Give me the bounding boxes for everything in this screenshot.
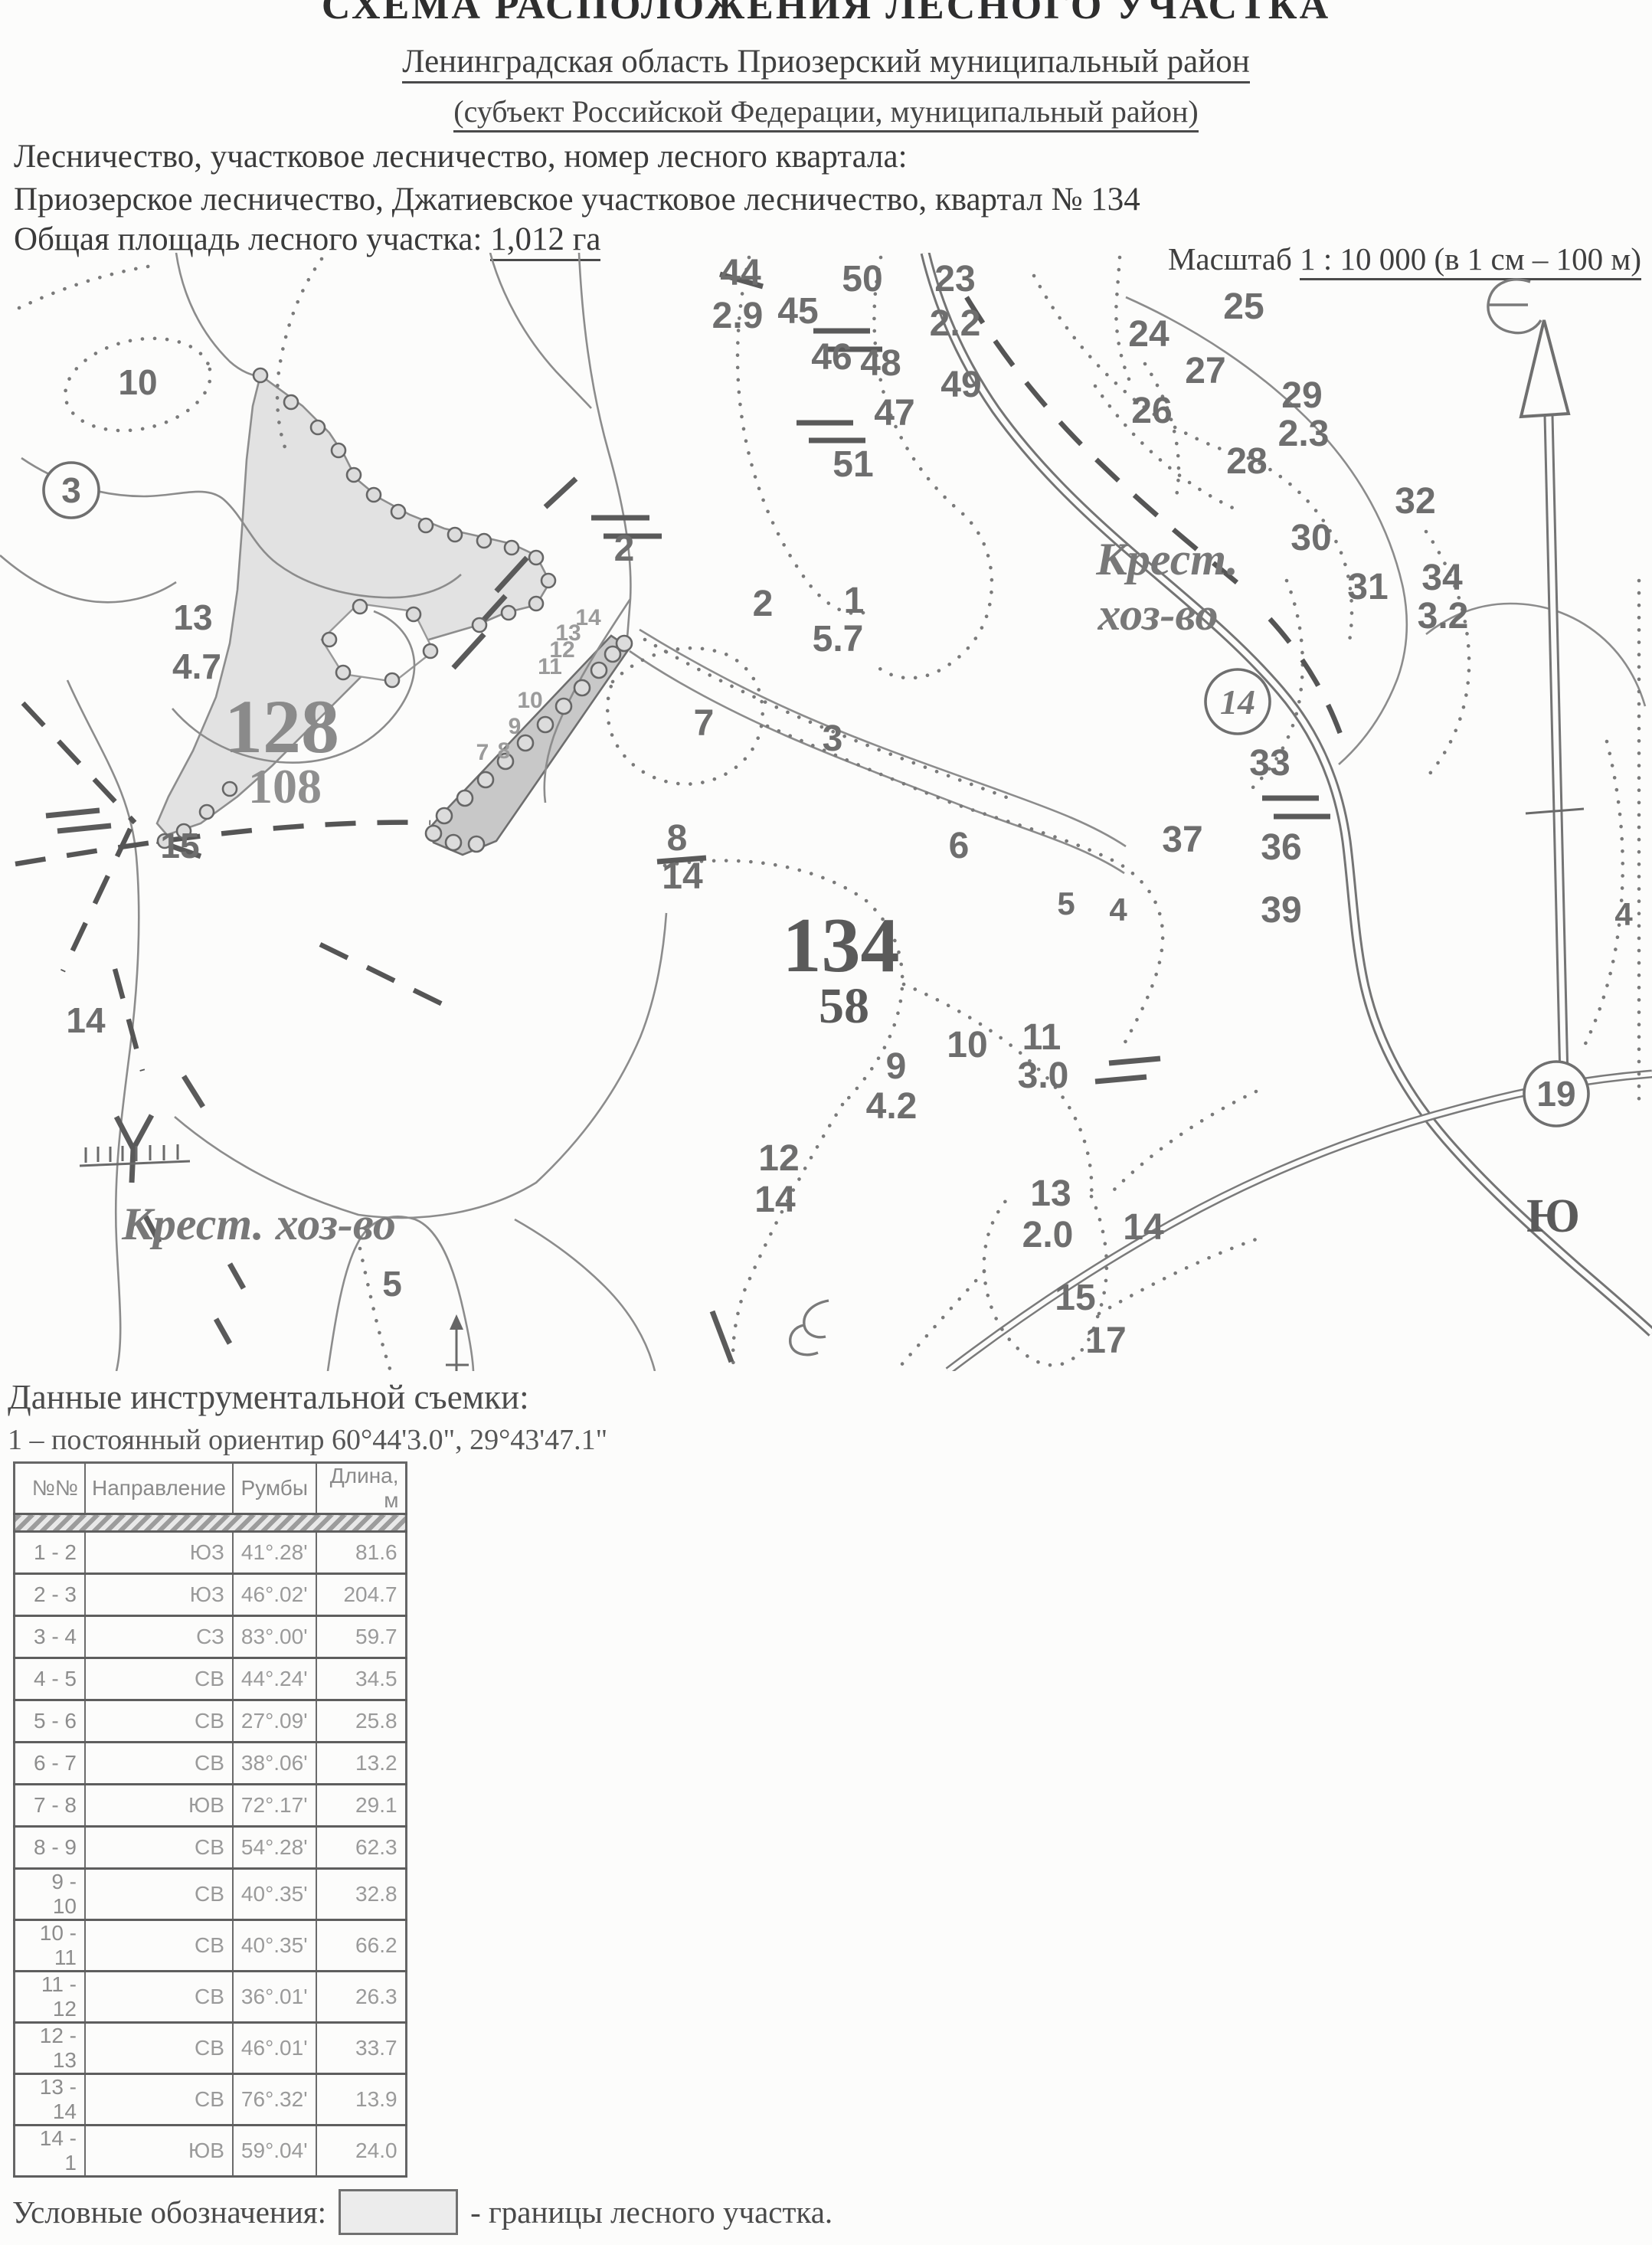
map-label: 28 (1226, 441, 1267, 482)
survey-row: 2 - 3ЮЗ46°.02'204.7 (15, 1574, 407, 1616)
map-label: 5.7 (813, 619, 864, 659)
survey-cell: 41°.28' (233, 1532, 316, 1574)
legend-meaning: - границы лесного участка. (470, 2194, 833, 2230)
survey-cell: 27°.09' (233, 1700, 316, 1743)
survey-cell: 7 - 8 (15, 1785, 86, 1827)
map-label: 27 (1185, 351, 1225, 391)
map-label: 49 (940, 365, 981, 405)
survey-row: 12 - 13СВ46°.01'33.7 (15, 2023, 407, 2074)
survey-row: 5 - 6СВ27°.09'25.8 (15, 1700, 407, 1743)
map-label: 39 (1261, 890, 1301, 931)
map-label: 8 (667, 818, 688, 859)
survey-cell: СВ (85, 1827, 233, 1869)
survey-cell: 24.0 (316, 2126, 407, 2177)
survey-cell: 44°.24' (233, 1658, 316, 1700)
map-label: 128 (224, 684, 339, 769)
map-label: 31 (1347, 567, 1388, 607)
survey-row: 6 - 7СВ38°.06'13.2 (15, 1743, 407, 1785)
legend-label: Условные обозначения: (12, 2194, 326, 2230)
north-arrow (1487, 280, 1584, 1078)
survey-cell: 13.9 (316, 2074, 407, 2126)
forestry-value: Приозерское лесничество, Джатиевское уча… (14, 181, 1140, 218)
map-label: 14 (575, 605, 601, 630)
survey-cell: 25.8 (316, 1700, 407, 1743)
survey-cell: СВ (85, 1700, 233, 1743)
survey-cell: 2 - 3 (15, 1574, 86, 1616)
map-label: 3.2 (1418, 596, 1469, 637)
survey-cell: 26.3 (316, 1972, 407, 2023)
map-label: 25 (1223, 286, 1264, 327)
map-label: 13 (1030, 1173, 1071, 1214)
survey-cell: 46°.02' (233, 1574, 316, 1616)
survey-cell: 8 - 9 (15, 1827, 86, 1869)
survey-col-header: Длина, м (316, 1463, 407, 1514)
survey-cell: 13 - 14 (15, 2074, 86, 2126)
tree-symbol (360, 1248, 469, 1371)
survey-cell: 5 - 6 (15, 1700, 86, 1743)
map-label: 5 (382, 1264, 402, 1304)
survey-cell: 54°.28' (233, 1827, 316, 1869)
map-label: 8 (498, 738, 511, 764)
map-label: 14 (1123, 1207, 1164, 1248)
survey-cell: 1 - 2 (15, 1532, 86, 1574)
survey-cell: 3 - 4 (15, 1616, 86, 1658)
survey-cell: 9 - 10 (15, 1869, 86, 1920)
survey-row: 3 - 4СЗ83°.00'59.7 (15, 1616, 407, 1658)
survey-cell: 12 - 13 (15, 2023, 86, 2074)
survey-row: 8 - 9СВ54°.28'62.3 (15, 1827, 407, 1869)
map-label: 10 (517, 688, 542, 713)
survey-cell: 4 - 5 (15, 1658, 86, 1700)
map-label: Ю (1526, 1190, 1580, 1242)
map-label: 2.2 (930, 303, 981, 344)
survey-cell: ЮВ (85, 1785, 233, 1827)
survey-cell: 13.2 (316, 1743, 407, 1785)
survey-table-header: №№НаправлениеРумбыДлина, м (15, 1463, 407, 1514)
survey-cell: 40°.35' (233, 1920, 316, 1972)
survey-cell: СВ (85, 1743, 233, 1785)
survey-cell: ЮВ (85, 2126, 233, 2177)
survey-row: 11 - 12СВ36°.01'26.3 (15, 1972, 407, 2023)
map-label: 29 (1281, 375, 1322, 416)
survey-row: 4 - 5СВ44°.24'34.5 (15, 1658, 407, 1700)
map-label: 134 (783, 902, 900, 989)
map-label: 4.7 (172, 646, 221, 686)
map-label: 48 (860, 343, 901, 384)
map-label: 14 (66, 1000, 106, 1040)
map-label: 19 (1536, 1074, 1575, 1114)
survey-cell: 46°.01' (233, 2023, 316, 2074)
map-label: 2 (614, 529, 635, 569)
map-label: 2 (753, 584, 774, 624)
plot-boundary-swatch (339, 2189, 458, 2235)
map-label: 46 (811, 337, 852, 378)
map-label: Крест. хоз-во (121, 1199, 396, 1249)
map-label: 6 (949, 826, 970, 866)
legend: Условные обозначения: - границы лесного … (12, 2189, 833, 2235)
survey-cell: СВ (85, 2023, 233, 2074)
survey-cell: 204.7 (316, 1574, 407, 1616)
map-label: 17 (1085, 1320, 1126, 1361)
hatched-separator-row (15, 1514, 407, 1532)
survey-cell: СЗ (85, 1616, 233, 1658)
map-label: 36 (1261, 827, 1301, 868)
map-label: 34 (1421, 558, 1463, 598)
survey-cell: 34.5 (316, 1658, 407, 1700)
survey-cell: 59°.04' (233, 2126, 316, 2177)
map-label: 10 (947, 1025, 987, 1065)
survey-cell: СВ (85, 2074, 233, 2126)
map-label: 9 (509, 714, 522, 739)
survey-heading: Данные инструментальной съемки: (8, 1377, 529, 1417)
map-label: 37 (1162, 820, 1202, 860)
map-label: 2.3 (1278, 414, 1330, 454)
map-label: 2.0 (1022, 1215, 1074, 1255)
map-label: 14 (1220, 682, 1255, 722)
survey-row: 9 - 10СВ40°.35'32.8 (15, 1869, 407, 1920)
map-label: 4 (1109, 892, 1127, 928)
map-label: 26 (1131, 391, 1172, 431)
survey-cell: 62.3 (316, 1827, 407, 1869)
map-label: хоз-во (1097, 589, 1218, 640)
map-label: 47 (874, 393, 914, 434)
map-label: 108 (248, 759, 322, 813)
map-label: 3 (823, 718, 843, 759)
survey-cell: 32.8 (316, 1869, 407, 1920)
survey-col-header: Направление (85, 1463, 233, 1514)
survey-cell: 76°.32' (233, 2074, 316, 2126)
map-label: 45 (777, 291, 818, 332)
survey-cell: ЮЗ (85, 1532, 233, 1574)
map-label: Крест. (1095, 534, 1238, 584)
map-label: 1 (844, 581, 865, 621)
survey-row: 14 - 1ЮВ59°.04'24.0 (15, 2126, 407, 2177)
map-label: 9 (886, 1046, 907, 1087)
map-label: 15 (1055, 1278, 1095, 1318)
survey-cell: 10 - 11 (15, 1920, 86, 1972)
survey-cell: СВ (85, 1972, 233, 2023)
forest-map: 31419 442.945504648494751232.22425272629… (0, 253, 1652, 1371)
survey-cell: СВ (85, 1920, 233, 1972)
survey-reference: 1 – постоянный ориентир 60°44'3.0", 29°4… (8, 1423, 607, 1457)
map-label: 13 (173, 597, 212, 637)
survey-cell: СВ (85, 1869, 233, 1920)
survey-col-header: Румбы (233, 1463, 316, 1514)
map-label: 7 (694, 703, 715, 744)
survey-row: 13 - 14СВ76°.32'13.9 (15, 2074, 407, 2126)
survey-cell: 11 - 12 (15, 1972, 86, 2023)
survey-cell: 83°.00' (233, 1616, 316, 1658)
scanned-forest-plot-document: { "header": { "title_cut": "СХЕМА РАСПОЛ… (0, 0, 1652, 2245)
north-symbol (1487, 280, 1541, 333)
survey-cell: 14 - 1 (15, 2126, 86, 2177)
survey-cell: 66.2 (316, 1920, 407, 1972)
area-label: Общая площадь лесного участка: (14, 221, 482, 257)
survey-cell: 38°.06' (233, 1743, 316, 1785)
map-label: 44 (720, 253, 761, 293)
survey-table: №№НаправлениеРумбыДлина, м 1 - 2ЮЗ41°.28… (13, 1461, 407, 2178)
map-label: 50 (842, 259, 882, 299)
survey-cell: 81.6 (316, 1532, 407, 1574)
survey-cell: 6 - 7 (15, 1743, 86, 1785)
map-symbol-e (790, 1301, 829, 1355)
map-label: 5 (1057, 885, 1075, 921)
survey-col-header: №№ (15, 1463, 86, 1514)
map-label: 23 (934, 259, 975, 299)
survey-row: 10 - 11СВ40°.35'66.2 (15, 1920, 407, 1972)
map-label: 12 (758, 1138, 799, 1179)
survey-cell: 33.7 (316, 2023, 407, 2074)
map-label: 32 (1395, 481, 1435, 522)
map-label: 14 (662, 856, 703, 897)
page-title: СХЕМА РАСПОЛОЖЕНИЯ ЛЕСНОГО УЧАСТКА (0, 0, 1652, 28)
forestry-label: Лесничество, участковое лесничество, ном… (14, 138, 908, 175)
map-label: 3 (61, 470, 81, 510)
map-label: 11 (1022, 1017, 1062, 1058)
map-label: 30 (1291, 518, 1331, 558)
map-label: 51 (833, 444, 873, 485)
map-label: 33 (1249, 743, 1290, 784)
map-label: 58 (819, 978, 869, 1034)
map-label: 3.0 (1018, 1055, 1069, 1096)
survey-cell: СВ (85, 1658, 233, 1700)
map-label: 4.2 (866, 1086, 918, 1127)
survey-cell: 29.1 (316, 1785, 407, 1827)
survey-cell: 72°.17' (233, 1785, 316, 1827)
survey-cell: 59.7 (316, 1616, 407, 1658)
map-label: 7 (476, 740, 489, 765)
survey-cell: 40°.35' (233, 1869, 316, 1920)
region-subtitle: (субъект Российской Федерации, муниципал… (0, 93, 1652, 129)
map-label: 24 (1128, 314, 1169, 355)
region-line: Ленинградская область Приозерский муници… (0, 43, 1652, 80)
survey-cell: 36°.01' (233, 1972, 316, 2023)
map-label: 4 (1614, 896, 1633, 932)
survey-row: 7 - 8ЮВ72°.17'29.1 (15, 1785, 407, 1827)
map-label: 10 (118, 362, 157, 402)
map-label: 14 (754, 1180, 796, 1220)
survey-cell: ЮЗ (85, 1574, 233, 1616)
map-label: 2.9 (712, 296, 764, 336)
map-label: 15 (160, 826, 199, 866)
survey-row: 1 - 2ЮЗ41°.28'81.6 (15, 1532, 407, 1574)
